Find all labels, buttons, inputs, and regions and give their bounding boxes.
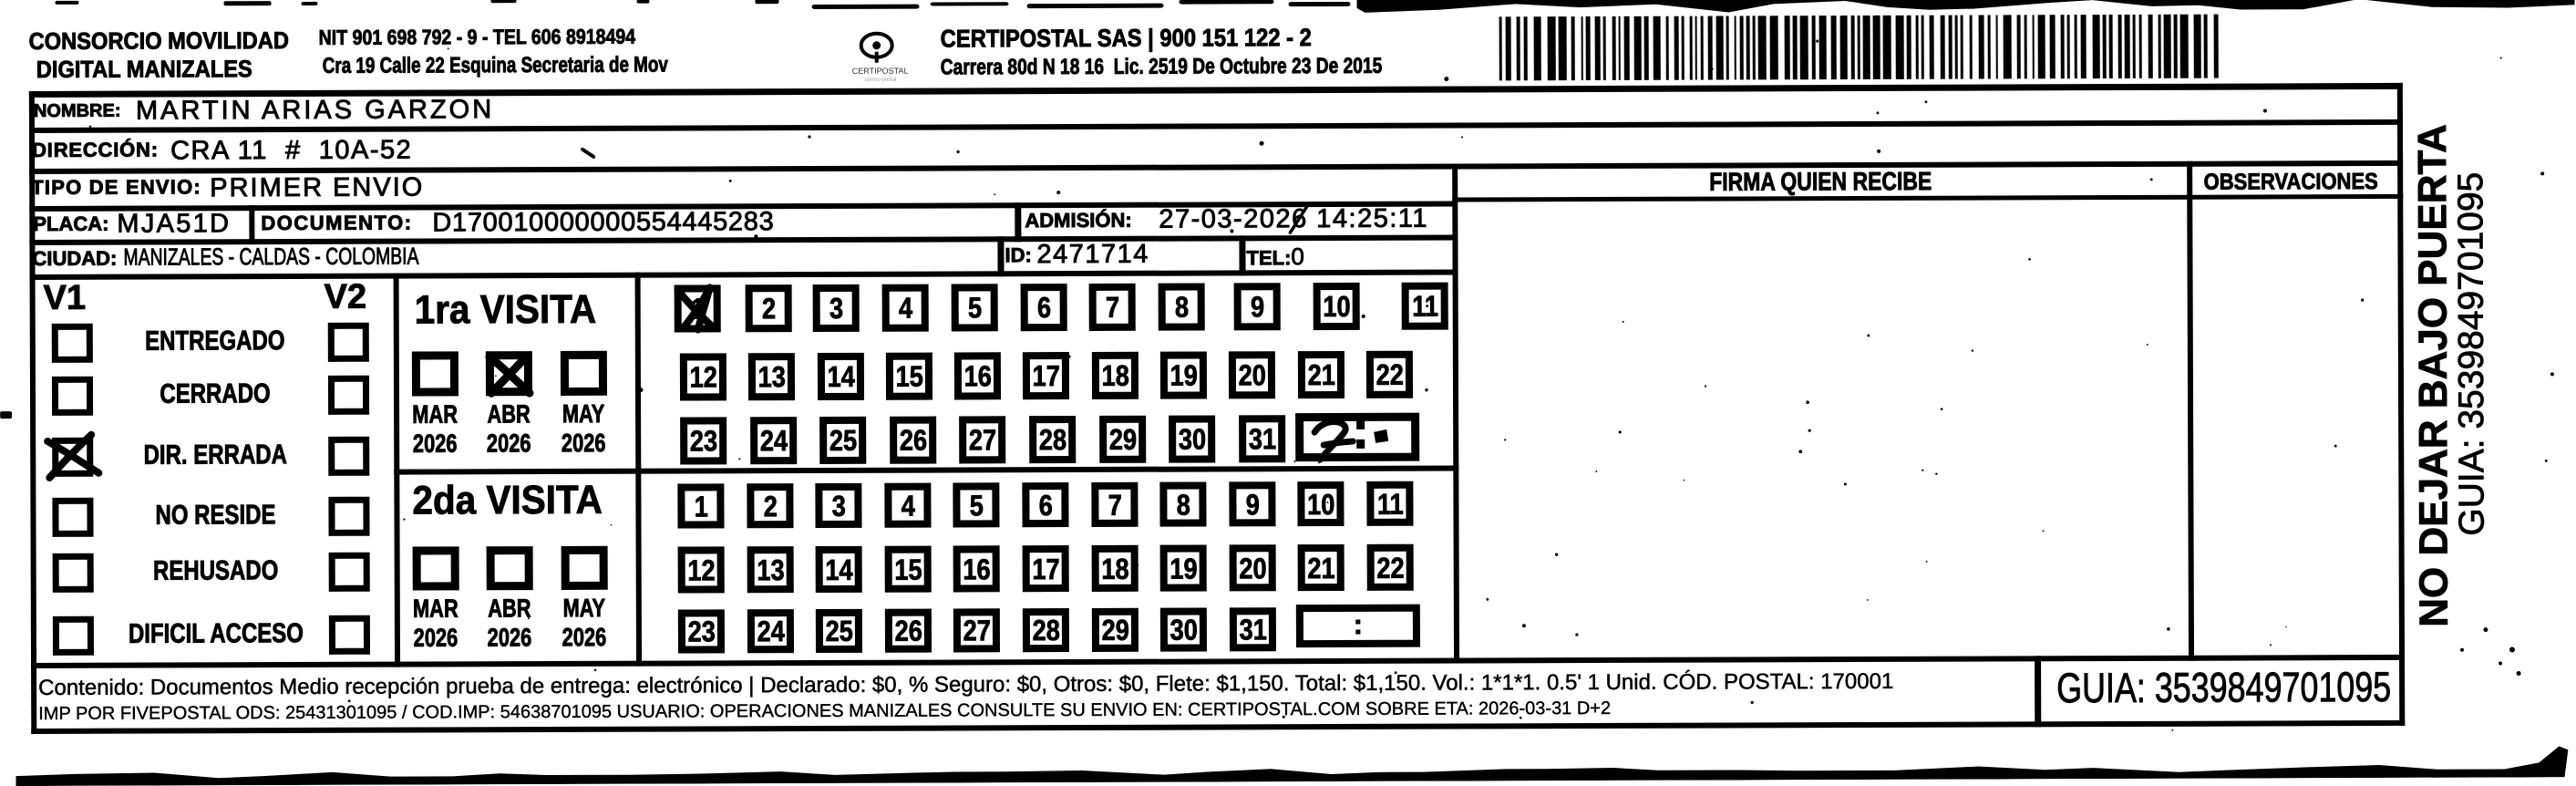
svg-text:correo postal: correo postal [865, 78, 897, 83]
svg-text:CERTIPOSTAL: CERTIPOSTAL [852, 67, 909, 76]
